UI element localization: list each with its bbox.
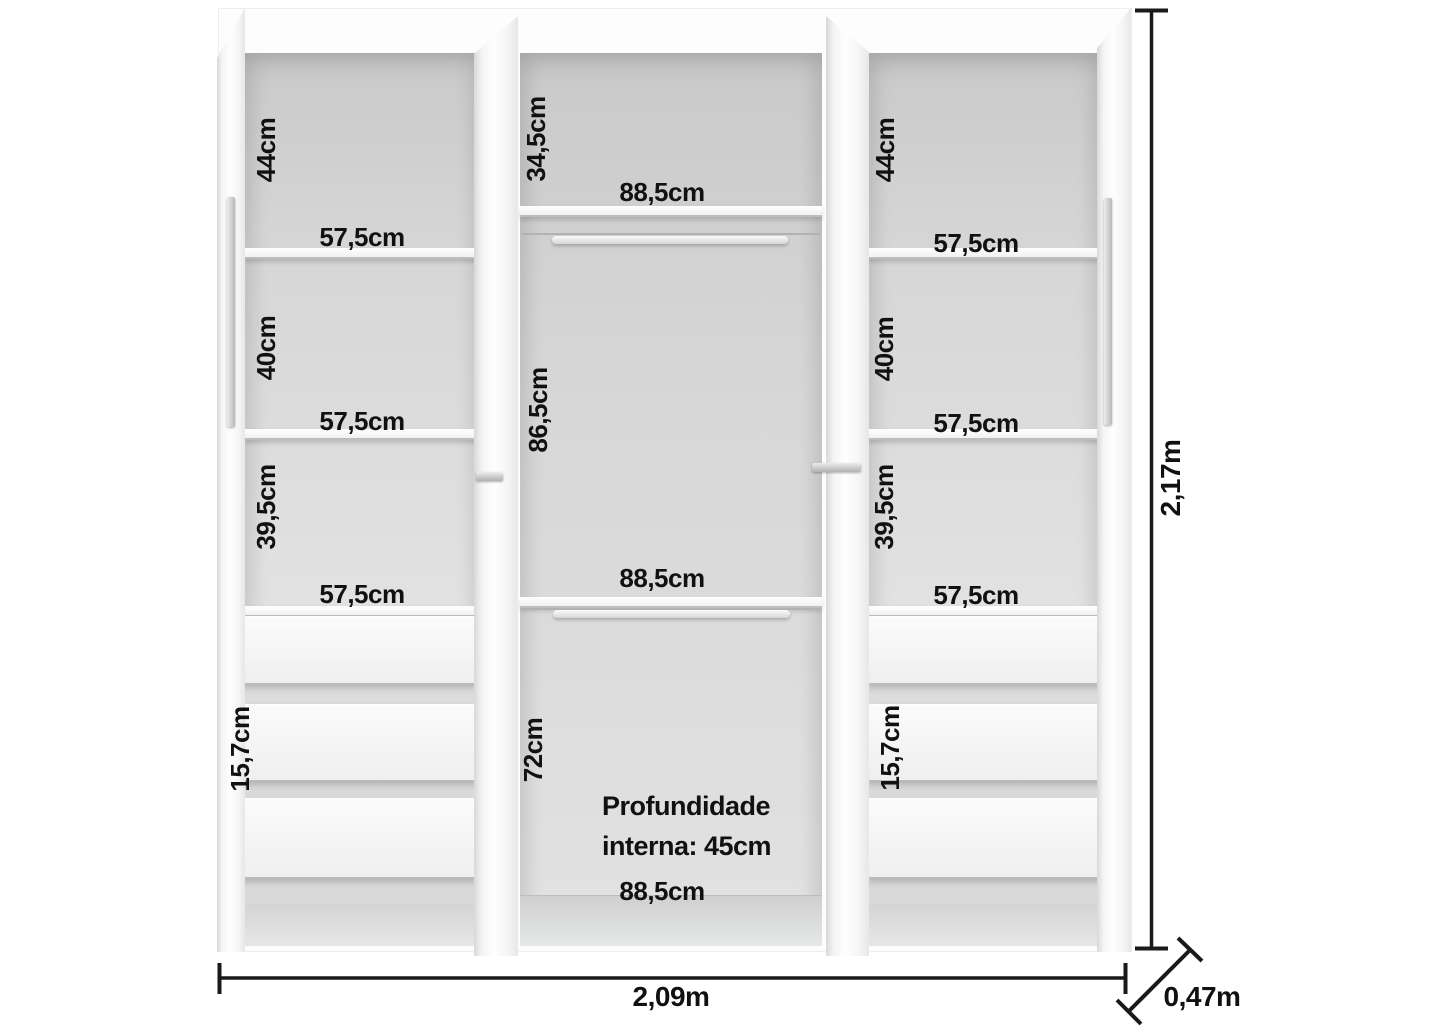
internal-depth-note-line1: Profundidade [602,786,771,826]
label-right-section1-height: 44cm [872,118,898,183]
right-middle-door-handle [812,463,861,472]
left-drawer-1 [224,616,478,684]
left-middle-door-handle [476,472,503,481]
right-drawer-3 [868,798,1110,878]
label-left-drawer-height: 15,7cm [227,706,253,791]
upper-rod-support [522,233,820,235]
right-section-interior [868,53,1100,616]
far-right-door-handle [1104,198,1112,425]
label-middle-top-section-height: 34,5cm [523,96,549,181]
label-left-shelf1-width: 57,5cm [319,224,404,250]
upper-hanging-rod-icon [552,236,788,244]
right-plinth [868,904,1110,946]
label-middle-shelf-width: 88,5cm [619,565,704,591]
internal-depth-note-line2: interna: 45cm [602,826,771,866]
label-right-shelf2-width: 57,5cm [933,410,1018,436]
label-left-shelf3-width: 57,5cm [319,581,404,607]
label-left-shelf2-width: 57,5cm [319,408,404,434]
label-overall-depth: 0,47m [1164,983,1241,1011]
label-right-shelf1-width: 57,5cm [933,230,1018,256]
label-left-section1-height: 44cm [253,118,279,183]
label-overall-width: 2,09m [633,983,710,1011]
left-drawer-stack [224,616,478,946]
label-overall-height: 2,17m [1157,440,1185,517]
label-left-section3-height: 39,5cm [253,464,279,549]
label-right-section2-height: 40cm [871,317,897,382]
label-right-shelf3-width: 57,5cm [933,582,1018,608]
label-middle-top-shelf-width: 88,5cm [619,179,704,205]
left-drawer-3 [224,798,478,878]
label-left-section2-height: 40cm [253,316,279,381]
label-middle-hanging-height: 86,5cm [525,367,551,452]
middle-top-shelf [520,206,822,217]
right-drawer-1 [868,616,1110,684]
lower-hanging-rod-icon [553,610,790,618]
left-plinth [224,904,478,946]
label-right-section3-height: 39,5cm [871,464,897,549]
left-drawer-2 [224,704,478,781]
far-left-door [217,8,245,952]
internal-depth-note: Profundidade interna: 45cm [602,786,771,866]
far-right-door [1097,8,1131,952]
label-middle-bottom-width: 88,5cm [619,878,704,904]
label-right-drawer-height: 15,7cm [877,705,903,790]
middle-divider-shelf [520,597,822,608]
wardrobe-dimension-diagram: 44cm 57,5cm 40cm 57,5cm 39,5cm 57,5cm 15… [0,0,1448,1030]
far-left-door-handle [227,197,235,427]
right-middle-door [826,16,869,956]
left-middle-door [474,16,518,956]
label-middle-lower-height: 72cm [520,718,546,783]
